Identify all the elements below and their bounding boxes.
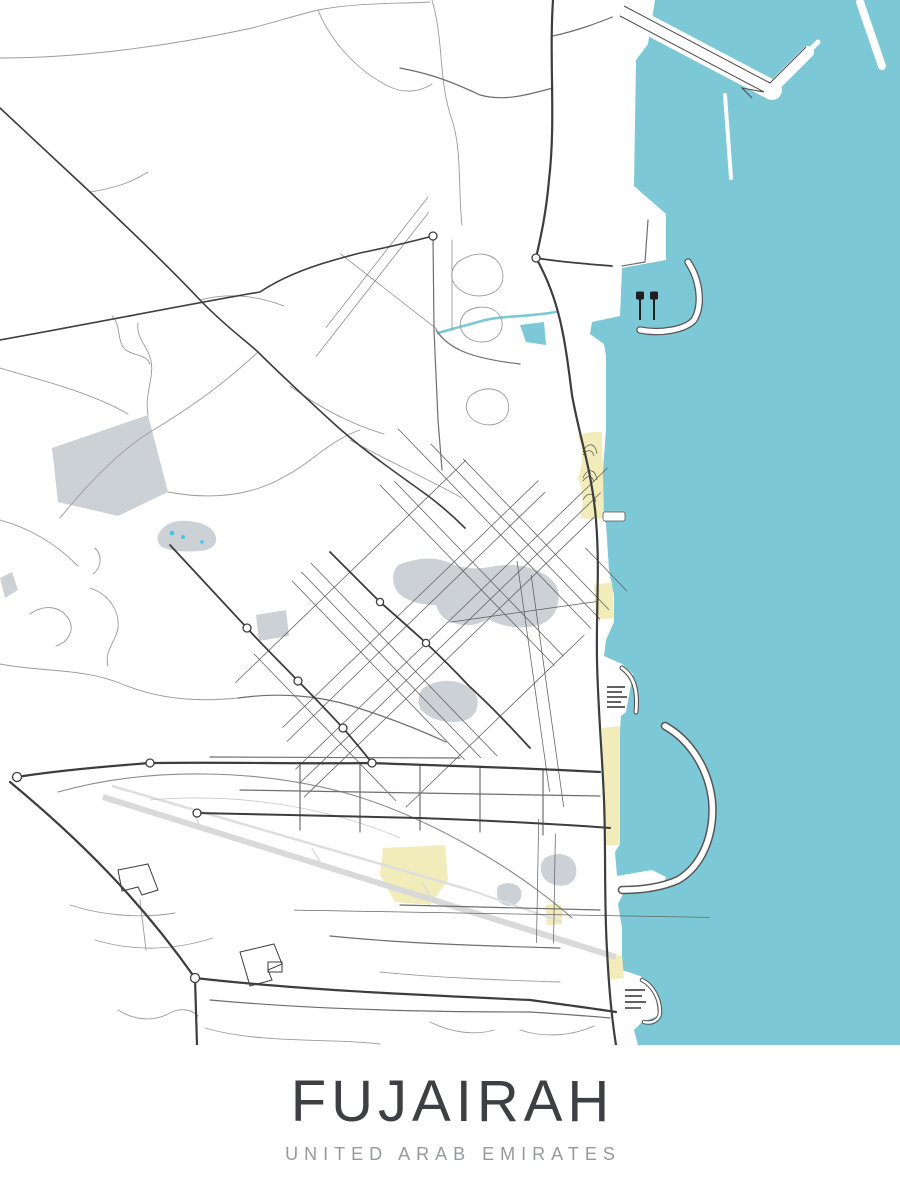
map-canvas	[0, 0, 900, 1045]
page-subtitle: UNITED ARAB EMIRATES	[279, 1144, 621, 1165]
map-poster: FUJAIRAH UNITED ARAB EMIRATES	[0, 0, 900, 1200]
page-title: FUJAIRAH	[286, 1073, 615, 1131]
city-map	[0, 0, 900, 1045]
poster-caption: FUJAIRAH UNITED ARAB EMIRATES	[0, 1045, 900, 1200]
